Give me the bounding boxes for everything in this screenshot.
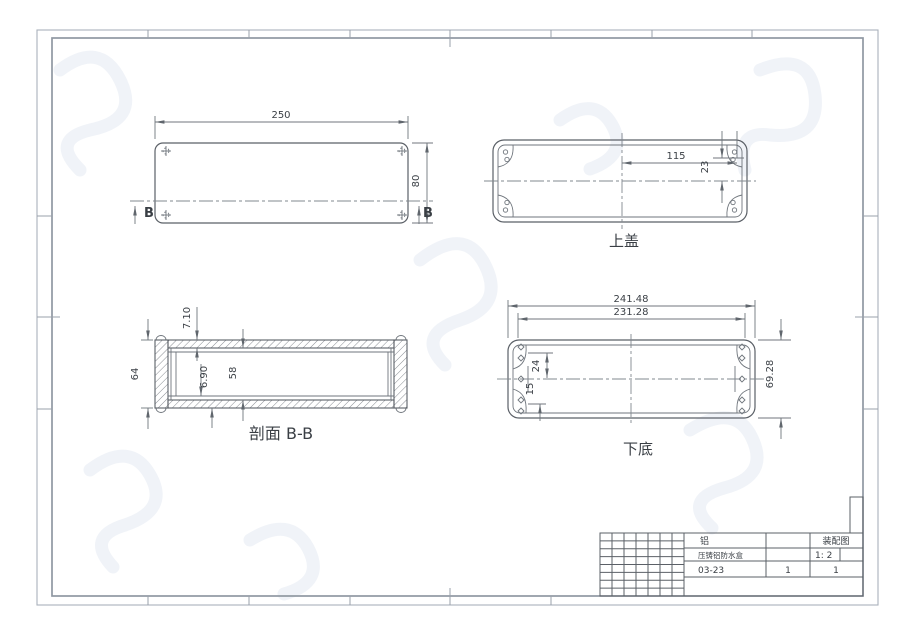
screw-hole-marks — [161, 146, 407, 220]
dim-base-inner-width: 231.28 — [614, 307, 649, 318]
view-title-top-cover: 上盖 — [609, 232, 639, 250]
dim-cover-offset-y: 23 — [700, 161, 711, 174]
part-name-cell: 压铸铝防水盒 — [698, 550, 743, 560]
dim-cover-offset-x: 115 — [666, 151, 685, 162]
section-right-wall — [394, 340, 407, 408]
watermark — [60, 57, 815, 594]
section-left-wall — [155, 340, 168, 408]
drawing-sheet: 250 80 B B 115 — [0, 0, 900, 636]
dim-base-outer-width: 241.48 — [614, 294, 649, 305]
title-block-side-cell — [850, 497, 863, 533]
title-block: 铝 装配图 压铸铝防水盒 1: 2 03-23 1 1 — [600, 497, 863, 596]
view-title-bottom-base: 下底 — [623, 440, 653, 458]
dim-section-overall: 64 — [130, 368, 141, 381]
view-title-section: 剖面 B-B — [249, 424, 313, 443]
drawing-no-cell: 03-23 — [698, 566, 724, 576]
dim-section-bottom-wall: 6.90 — [199, 366, 210, 388]
cad-drawing: 250 80 B B 115 — [0, 0, 900, 636]
dim-base-offset-top: 24 — [531, 360, 542, 373]
dim-section-inner-height: 58 — [228, 367, 239, 380]
section-label-right: B — [423, 206, 433, 221]
dim-plan-height: 80 — [411, 175, 422, 188]
section-label-left: B — [144, 206, 154, 221]
scale-cell: 1: 2 — [815, 551, 832, 561]
section-bottom-wall — [168, 400, 394, 408]
material-cell: 铝 — [700, 535, 709, 547]
title-block-grid — [600, 533, 684, 596]
sheet-total-cell: 1 — [833, 566, 839, 576]
sheet-no-cell: 1 — [785, 566, 791, 576]
doc-type-cell: 装配图 — [822, 535, 849, 547]
view-plan: 250 80 B B — [130, 110, 433, 224]
dim-section-top-wall: 7.10 — [182, 307, 193, 329]
dim-base-overall-height: 69.28 — [765, 360, 776, 389]
dim-base-offset-bottom: 15 — [525, 383, 536, 396]
section-top-wall — [168, 340, 394, 348]
view-section-bb: 64 7.10 6.90 58 剖面 B-B — [130, 307, 407, 443]
dim-plan-width: 250 — [271, 110, 290, 121]
